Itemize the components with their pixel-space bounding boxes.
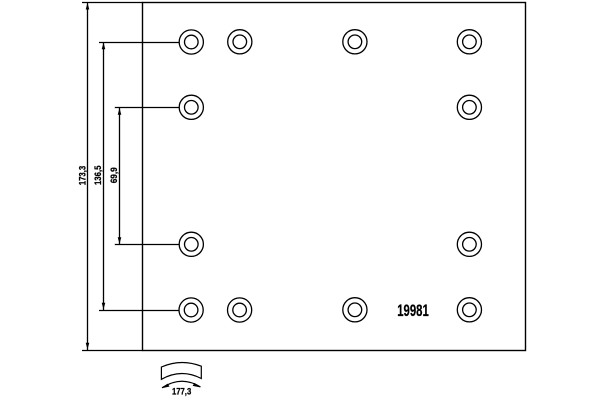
svg-text:19981: 19981 — [397, 301, 429, 320]
svg-text:69,9: 69,9 — [109, 167, 119, 183]
svg-text:177,3: 177,3 — [172, 386, 191, 397]
svg-text:173,3: 173,3 — [77, 166, 87, 186]
svg-text:136,5: 136,5 — [93, 166, 103, 186]
